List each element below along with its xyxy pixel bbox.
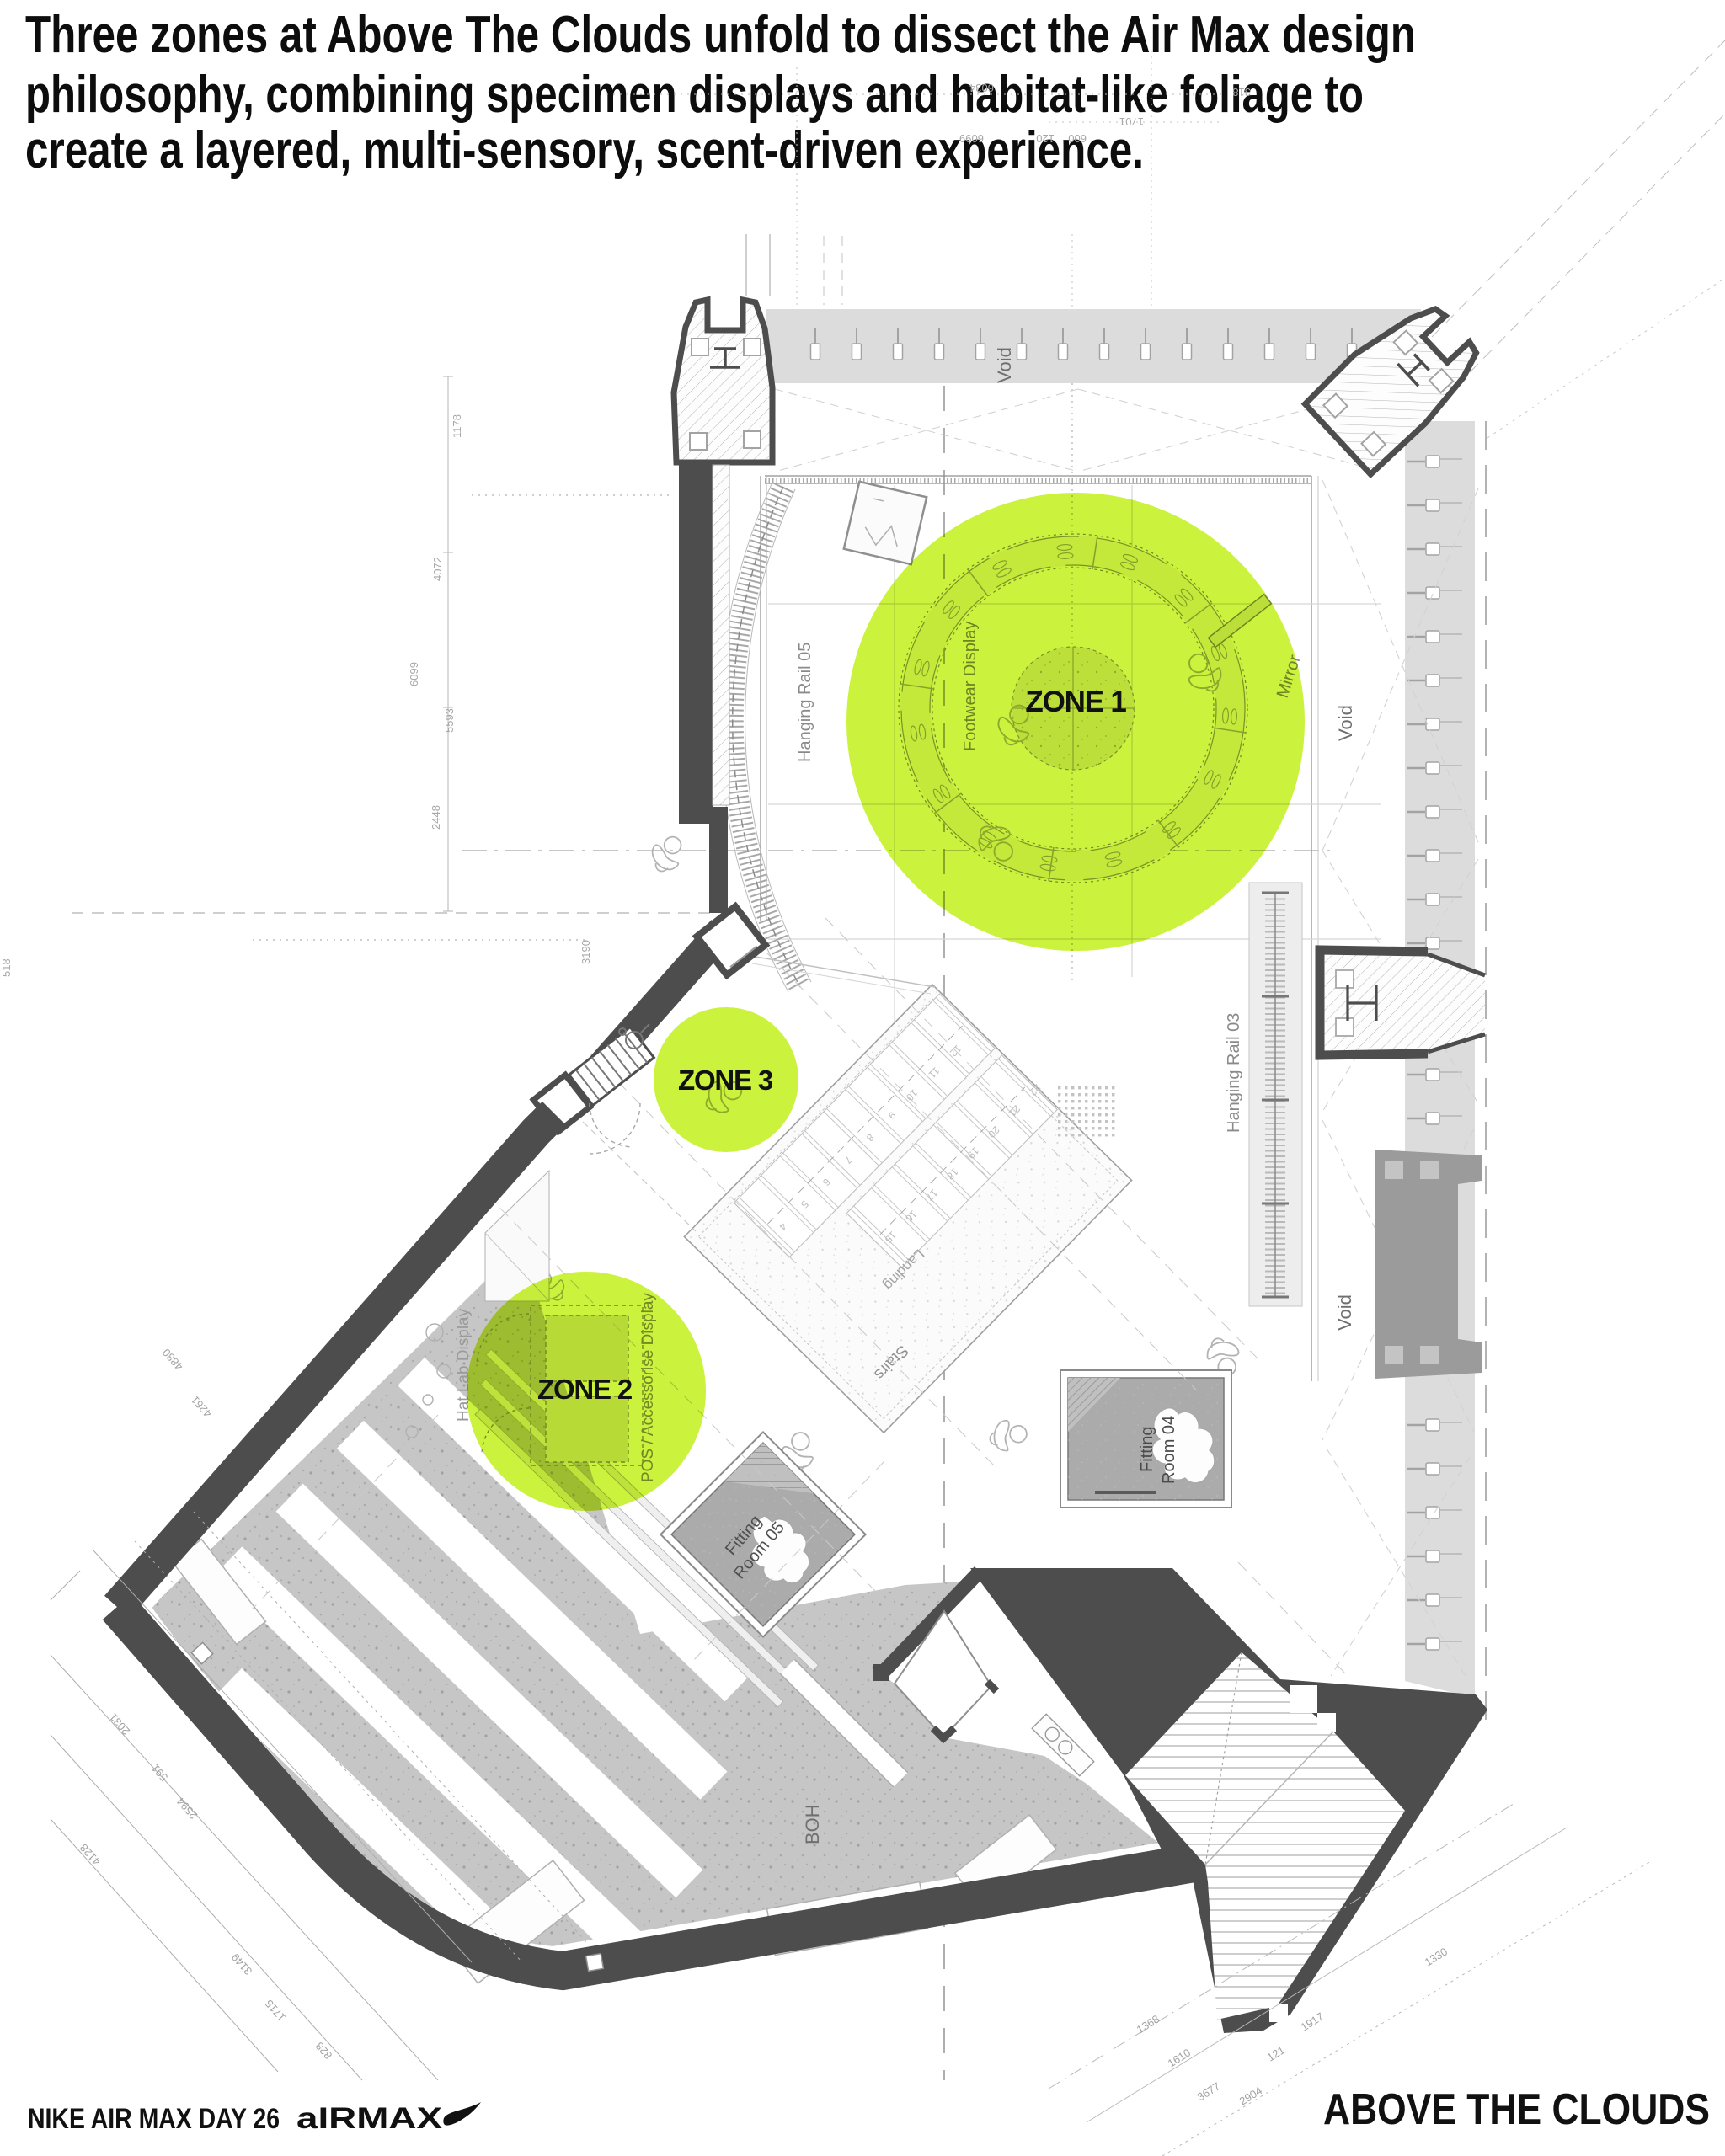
svg-text:ZONE 3: ZONE 3 [678, 1065, 773, 1096]
svg-text:120: 120 [1036, 132, 1055, 145]
svg-text:318: 318 [1232, 86, 1251, 99]
svg-text:aIRMAX: aIRMAX [296, 2102, 443, 2135]
svg-text:4072: 4072 [431, 557, 444, 581]
svg-text:518: 518 [0, 958, 13, 977]
svg-text:1178: 1178 [451, 414, 463, 438]
svg-text:BOH: BOH [802, 1804, 823, 1844]
svg-text:Void: Void [1335, 705, 1356, 741]
svg-text:Room 04: Room 04 [1160, 1416, 1178, 1484]
svg-text:Hanging Rail 03: Hanging Rail 03 [1225, 1013, 1243, 1133]
svg-text:1701: 1701 [1119, 115, 1144, 128]
svg-text:6034: 6034 [969, 82, 994, 94]
svg-text:ZONE 1: ZONE 1 [1025, 686, 1126, 718]
svg-text:Hanging Rail 05: Hanging Rail 05 [796, 643, 814, 762]
svg-text:600: 600 [1068, 132, 1087, 145]
svg-text:create a layered, multi-sensor: create a layered, multi-sensory, scent-d… [25, 121, 1144, 179]
svg-text:Void: Void [1334, 1294, 1355, 1331]
svg-text:ZONE 2: ZONE 2 [537, 1374, 633, 1405]
svg-text:Fitting: Fitting [1138, 1427, 1156, 1472]
svg-text:Void: Void [994, 347, 1015, 383]
svg-text:6099: 6099 [959, 132, 984, 145]
svg-text:2448: 2448 [430, 805, 442, 830]
svg-text:ABOVE THE CLOUDS: ABOVE THE CLOUDS [1323, 2085, 1710, 2134]
svg-text:6099: 6099 [408, 662, 420, 686]
svg-text:5593: 5593 [443, 708, 456, 733]
svg-text:3190: 3190 [579, 940, 592, 964]
svg-text:NIKE AIR MAX DAY 26: NIKE AIR MAX DAY 26 [28, 2103, 280, 2135]
svg-text:Three zones at Above The Cloud: Three zones at Above The Clouds unfold t… [25, 6, 1416, 64]
